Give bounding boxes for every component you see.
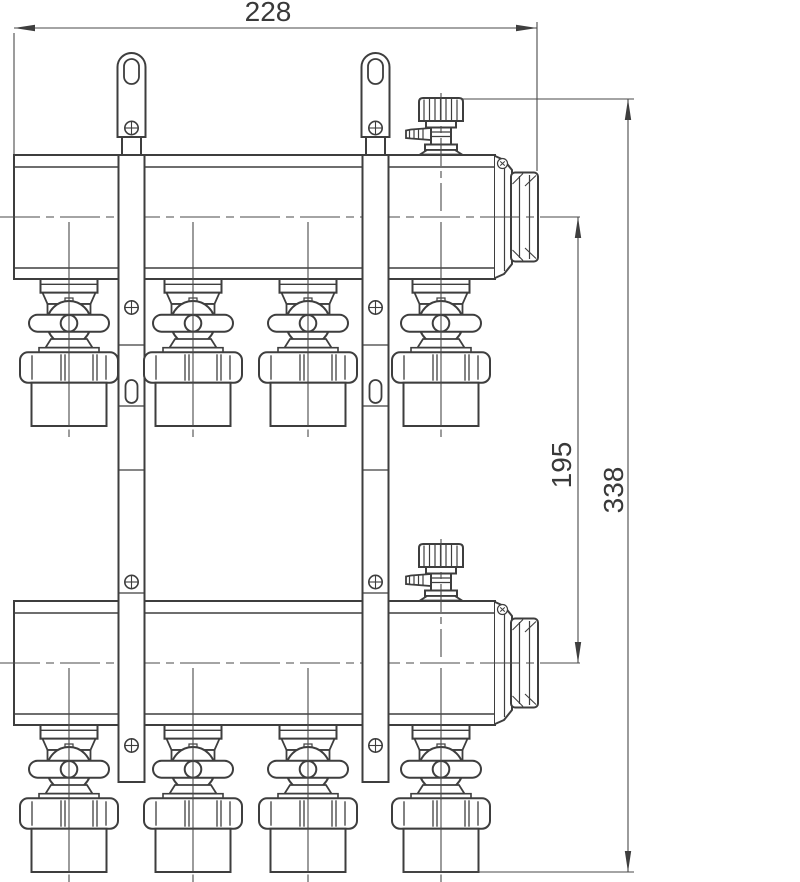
arrow-up-icon <box>625 99 631 120</box>
dimension-height-label: 338 <box>598 467 629 514</box>
mounting-bracket-left <box>118 53 146 782</box>
arrow-left-icon <box>14 25 35 31</box>
dimension-spacing: 195 <box>546 217 581 663</box>
manifold-technical-drawing-page: 228 195 338 <box>0 0 800 882</box>
mounting-bracket-right <box>362 53 390 782</box>
dimension-spacing-label: 195 <box>546 442 577 489</box>
dimension-width: 228 <box>14 0 537 171</box>
arrow-down-icon <box>625 851 631 872</box>
dimension-width-label: 228 <box>245 0 292 27</box>
arrow-down-icon <box>575 642 581 663</box>
technical-drawing: 228 195 338 <box>0 0 800 882</box>
arrow-up-icon <box>575 217 581 238</box>
drain-valve-top <box>406 98 463 155</box>
arrow-right-icon <box>516 25 537 31</box>
drain-valve-bottom <box>406 544 463 601</box>
